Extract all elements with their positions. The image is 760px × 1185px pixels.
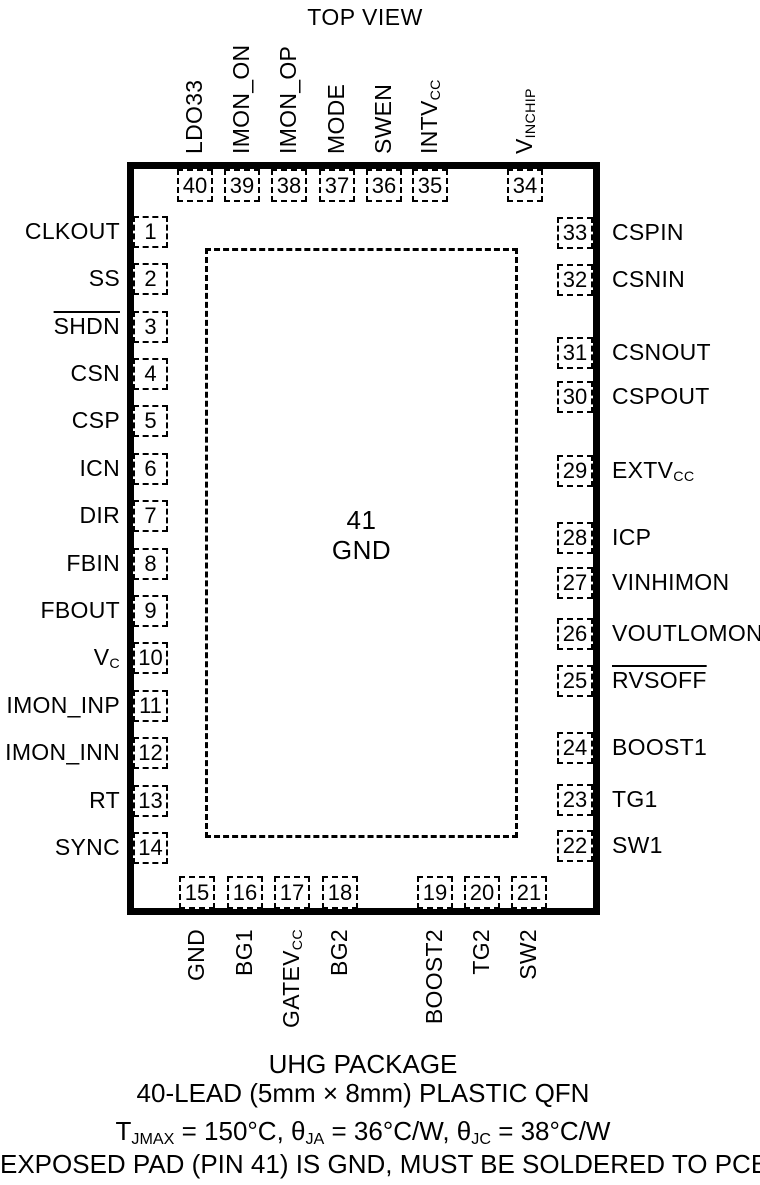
pin-36-box: 36	[366, 169, 402, 202]
pin-8-label: FBIN	[66, 550, 120, 577]
pin-30-label: CSPOUT	[612, 383, 710, 410]
pin-5-box: 5	[133, 405, 168, 437]
pin-13-box: 13	[133, 785, 168, 817]
pin-30-box: 30	[557, 381, 593, 413]
pin-27-label: VINHIMON	[612, 569, 729, 596]
pin-39-box: 39	[224, 169, 260, 202]
pin-32-box: 32	[557, 264, 593, 296]
pin-1-box: 1	[133, 216, 168, 248]
diagram-title: TOP VIEW	[0, 4, 730, 31]
pin-34-box: 34	[507, 169, 543, 202]
pin-11-box: 11	[133, 690, 168, 722]
pin-1-label: CLKOUT	[25, 218, 120, 245]
pin-8-box: 8	[133, 548, 168, 580]
pin-10-box: 10	[133, 642, 168, 674]
pin-27-box: 27	[557, 567, 593, 599]
pin-33-label: CSPIN	[612, 219, 684, 246]
pin-6-label: ICN	[79, 455, 120, 482]
pin-16-box: 16	[227, 876, 263, 909]
pin-4-label: CSN	[71, 360, 120, 387]
pin-26-label: VOUTLOMON	[612, 620, 760, 647]
pin-24-label: BOOST1	[612, 734, 707, 761]
pin-29-label: EXTVCC	[612, 457, 694, 488]
pin-32-label: CSNIN	[612, 266, 685, 293]
pin-11-label: IMON_INP	[6, 692, 120, 719]
pin-14-box: 14	[133, 832, 168, 864]
pin-19-box: 19	[417, 876, 453, 909]
pin-2-box: 2	[133, 263, 168, 295]
pin-17-box: 17	[274, 876, 310, 909]
pin-37-box: 37	[319, 169, 355, 202]
pin-20-box: 20	[464, 876, 500, 909]
pin-26-box: 26	[557, 618, 593, 650]
pin-6-box: 6	[133, 453, 168, 485]
pin-21-box: 21	[511, 876, 547, 909]
pin-29-box: 29	[557, 455, 593, 487]
pin-10-label: VC	[94, 644, 120, 675]
pin-14-label: SYNC	[55, 834, 120, 861]
pin-25-label: RVSOFF	[612, 667, 707, 694]
pin-18-box: 18	[322, 876, 358, 909]
pin-22-box: 22	[557, 830, 593, 862]
pin-33-box: 33	[557, 217, 593, 249]
caption-package-desc: 40-LEAD (5mm × 8mm) PLASTIC QFN	[0, 1079, 726, 1108]
pin-24-box: 24	[557, 732, 593, 764]
pin-40-box: 40	[177, 169, 213, 202]
exposed-pad-label: 41 GND	[205, 505, 518, 565]
pin-22-label: SW1	[612, 832, 663, 859]
pin-7-box: 7	[133, 500, 168, 532]
pin-12-box: 12	[133, 737, 168, 769]
caption-thermal-data: TJMAX = 150°C, θJA = 36°C/W, θJC = 38°C/…	[0, 1117, 726, 1150]
qfn-pinout-diagram: TOP VIEW 41 GND 1CLKOUT2SS3SHDN4CSN5CSP6…	[0, 0, 760, 1185]
pin-3-box: 3	[133, 311, 168, 343]
pin-12-label: IMON_INN	[5, 739, 120, 766]
pin-31-label: CSNOUT	[612, 339, 711, 366]
pin-7-label: DIR	[79, 502, 120, 529]
pin-13-label: RT	[89, 787, 120, 814]
pin-25-box: 25	[557, 665, 593, 697]
exposed-pad-number: 41	[205, 505, 518, 535]
caption-package-name: UHG PACKAGE	[0, 1050, 726, 1079]
pin-35-box: 35	[412, 169, 448, 202]
pin-9-box: 9	[133, 595, 168, 627]
exposed-pad-name: GND	[205, 535, 518, 565]
pin-31-box: 31	[557, 337, 593, 369]
pin-38-box: 38	[271, 169, 307, 202]
caption-exposed-pad-note: EXPOSED PAD (PIN 41) IS GND, MUST BE SOL…	[0, 1150, 726, 1179]
pin-15-box: 15	[179, 876, 215, 909]
pin-28-box: 28	[557, 522, 593, 554]
pin-23-label: TG1	[612, 786, 658, 813]
pin-9-label: FBOUT	[41, 597, 120, 624]
pin-2-label: SS	[89, 265, 120, 292]
caption-block: UHG PACKAGE 40-LEAD (5mm × 8mm) PLASTIC …	[0, 1050, 726, 1179]
pin-28-label: ICP	[612, 524, 651, 551]
pin-4-box: 4	[133, 358, 168, 390]
pin-23-box: 23	[557, 784, 593, 816]
pin-3-label: SHDN	[54, 313, 120, 340]
pin-5-label: CSP	[72, 407, 120, 434]
